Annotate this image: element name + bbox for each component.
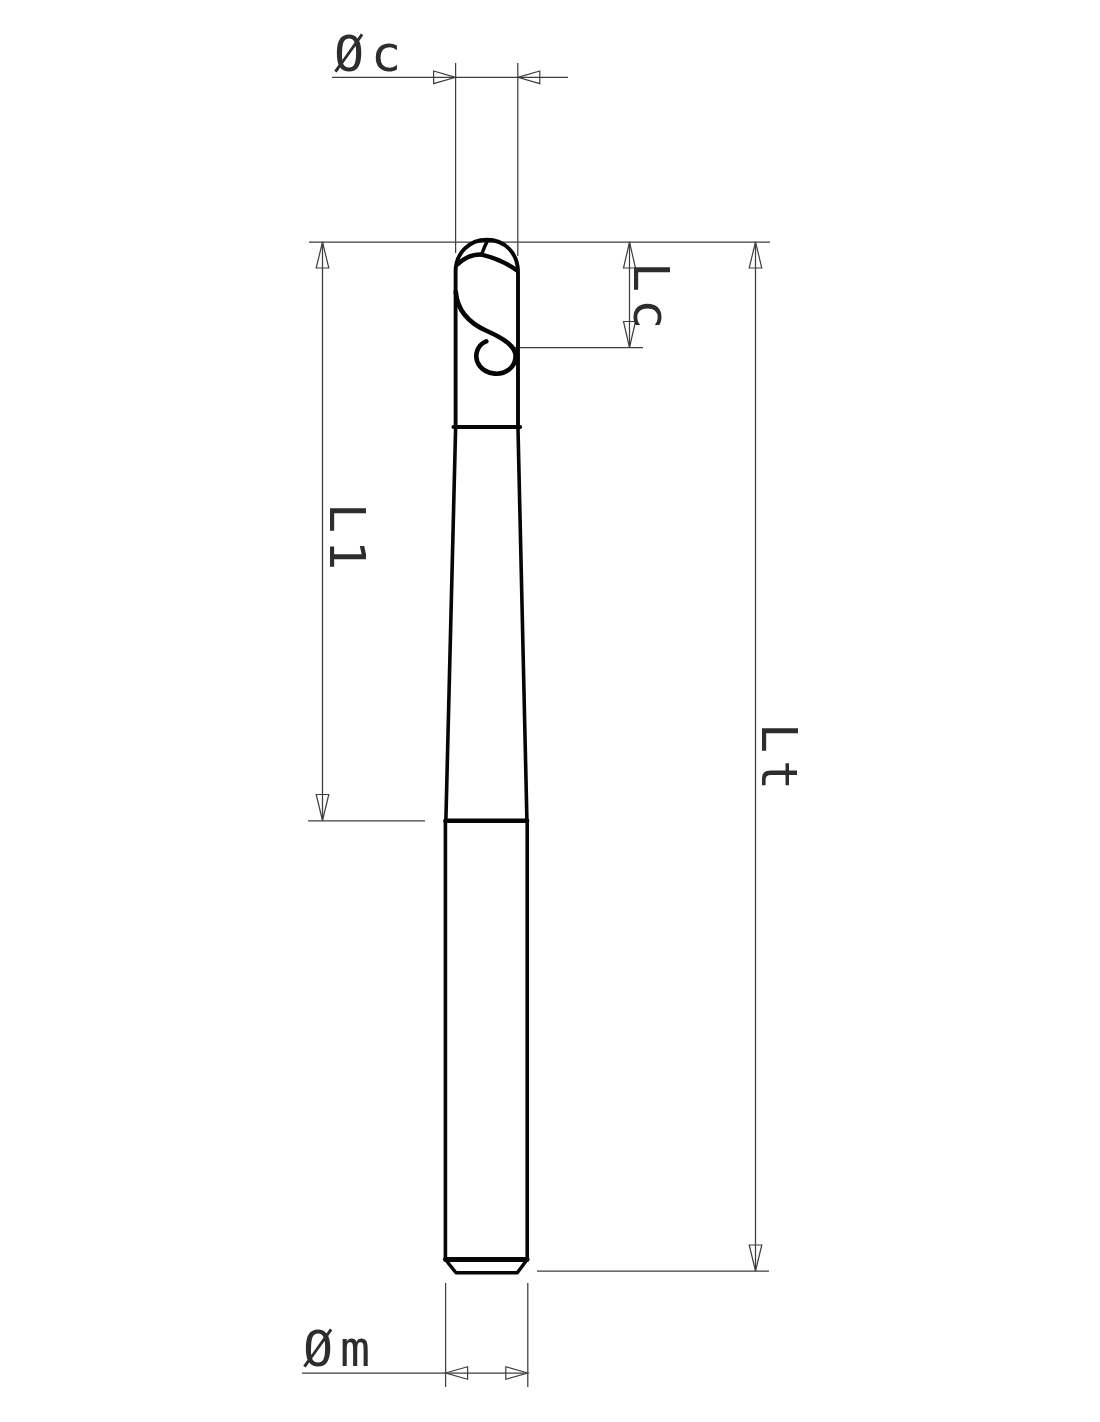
tool-profile — [445, 240, 527, 1273]
end-mill-dimension-drawing — [0, 0, 1100, 1422]
neck-taper-left — [446, 429, 456, 820]
arrowheads — [316, 71, 762, 1379]
label-cutting-diameter: Øc — [334, 29, 408, 79]
label-shank-diameter: Øm — [303, 1324, 377, 1374]
label-neck-length: L1 — [322, 503, 372, 577]
technical-drawing-page: Øc Lc L1 Lt Øm — [0, 0, 1100, 1422]
dimension-lines — [302, 63, 770, 1387]
flute-edge-right — [482, 255, 517, 270]
flute-spiral — [456, 292, 516, 374]
label-overall-length: Lt — [754, 723, 804, 797]
shank-bottom-chamfer — [446, 1261, 526, 1273]
neck-taper-right — [518, 429, 527, 820]
label-cutting-length: Lc — [626, 262, 676, 336]
